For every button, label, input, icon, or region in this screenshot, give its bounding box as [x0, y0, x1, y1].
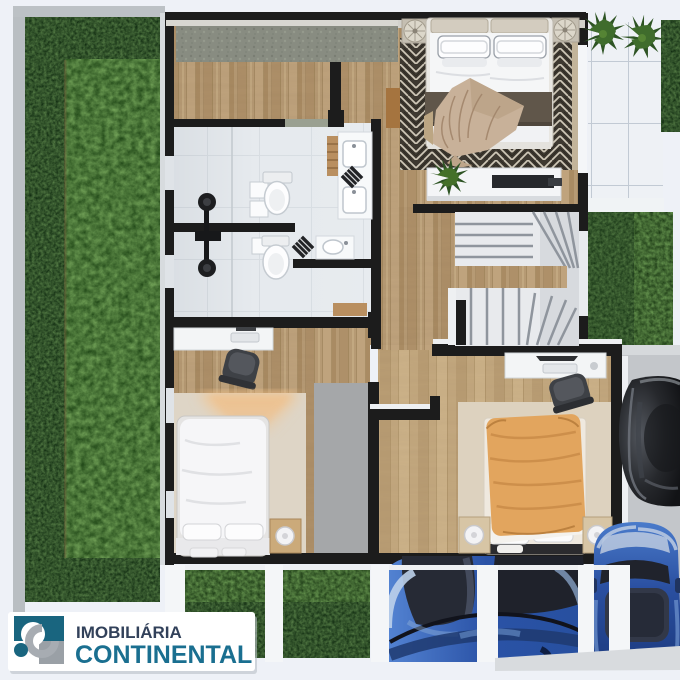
svg-text:IMOBILIÁRIA: IMOBILIÁRIA [76, 623, 182, 642]
svg-text:CONTINENTAL: CONTINENTAL [75, 641, 252, 669]
